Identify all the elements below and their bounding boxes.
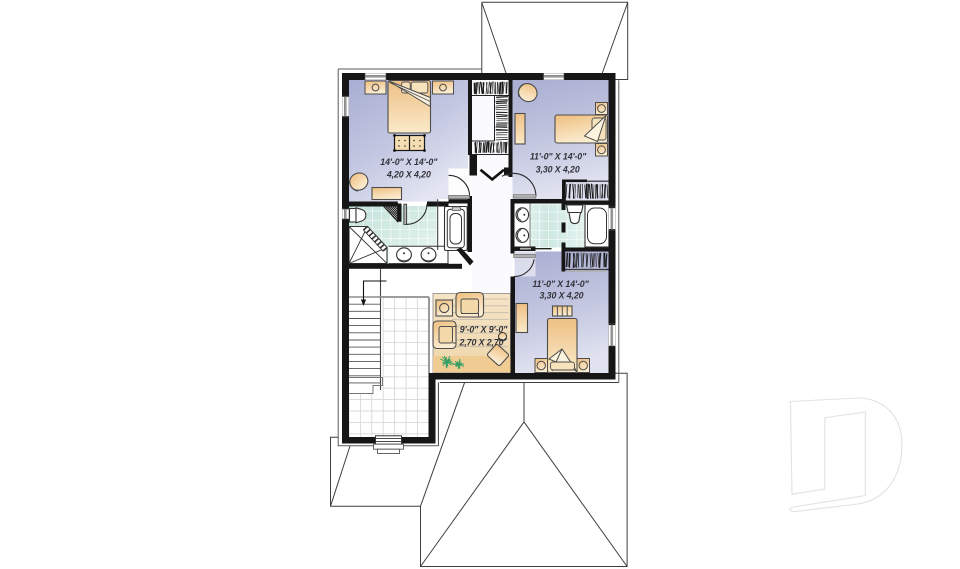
svg-text:2,70 X 2,70: 2,70 X 2,70: [459, 338, 504, 348]
svg-text:9'-0" X 9'-0": 9'-0" X 9'-0": [460, 325, 508, 335]
svg-text:3,30 X 4,20: 3,30 X 4,20: [536, 165, 580, 175]
svg-text:4,20 X 4,20: 4,20 X 4,20: [386, 170, 431, 180]
svg-text:11'-0" X 14'-0": 11'-0" X 14'-0": [530, 152, 587, 162]
svg-text:3,30 X 4,20: 3,30 X 4,20: [540, 291, 584, 301]
svg-text:14'-0" X 14'-0": 14'-0" X 14'-0": [380, 157, 438, 167]
svg-text:11'-0" X 14'-0": 11'-0" X 14'-0": [532, 279, 589, 289]
